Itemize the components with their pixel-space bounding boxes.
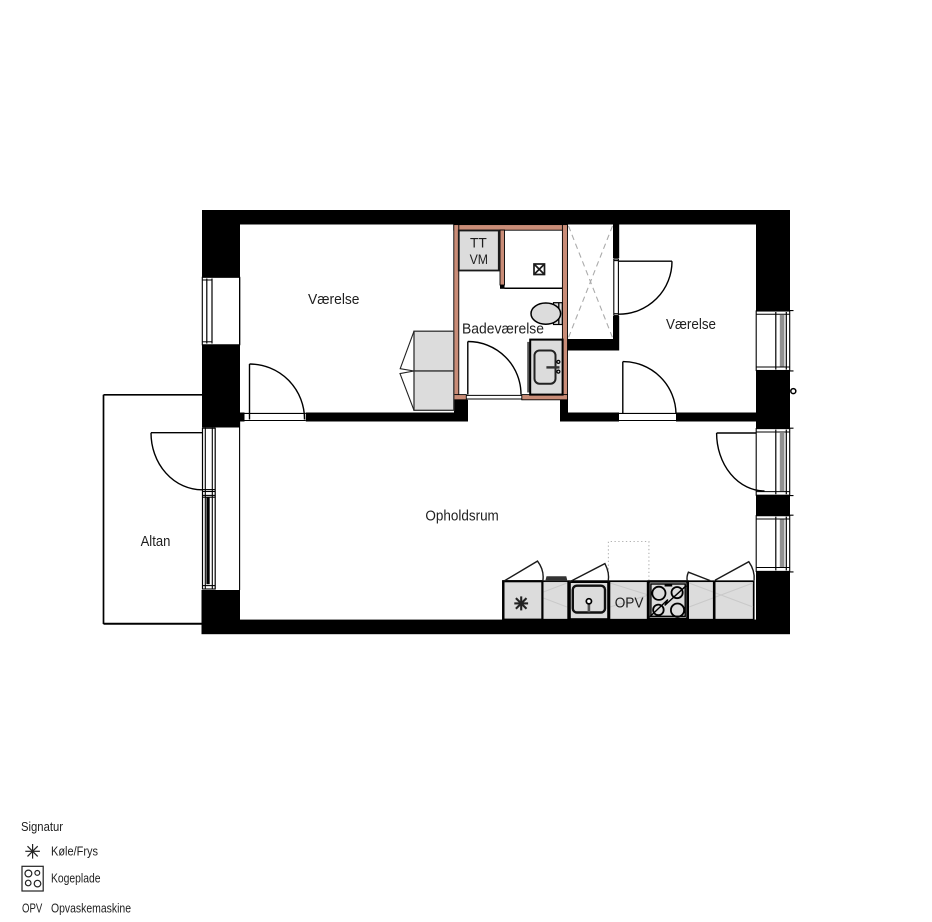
svg-text:OPV: OPV <box>615 596 644 612</box>
svg-text:Kogeplade: Kogeplade <box>51 870 101 885</box>
svg-text:VM: VM <box>470 252 488 267</box>
svg-text:TT: TT <box>470 235 487 250</box>
svg-text:Signatur: Signatur <box>21 819 64 834</box>
svg-text:Badeværelse: Badeværelse <box>462 321 544 337</box>
svg-text:OPV: OPV <box>22 900 43 915</box>
svg-text:Værelse: Værelse <box>666 317 716 333</box>
svg-text:Altan: Altan <box>141 534 171 550</box>
svg-text:Opvaskemaskine: Opvaskemaskine <box>51 900 131 915</box>
svg-text:Køle/Frys: Køle/Frys <box>51 843 98 858</box>
svg-text:Værelse: Værelse <box>308 292 360 308</box>
svg-text:Opholdsrum: Opholdsrum <box>425 507 498 524</box>
